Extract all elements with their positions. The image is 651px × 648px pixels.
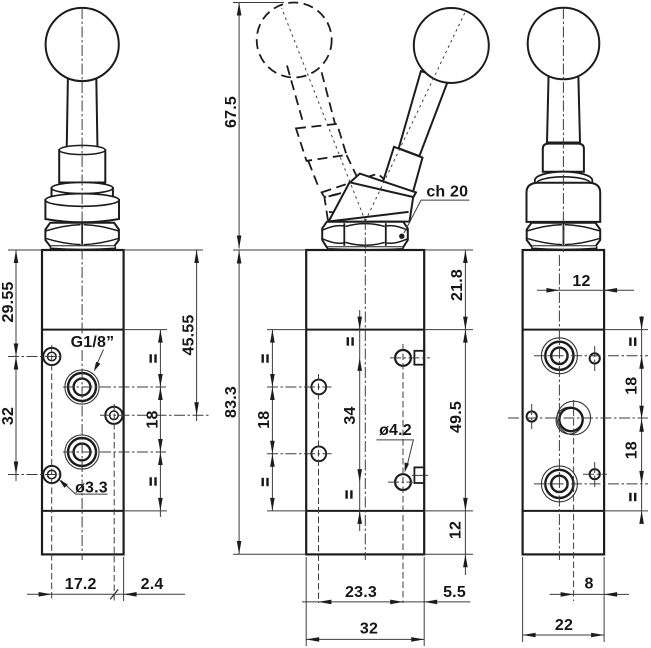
svg-text:67.5: 67.5	[223, 96, 240, 128]
svg-text:ø4.2: ø4.2	[379, 422, 412, 439]
svg-text:12: 12	[448, 521, 465, 539]
svg-text:34: 34	[342, 406, 359, 424]
svg-text:29.55: 29.55	[0, 281, 17, 322]
svg-text:22: 22	[555, 617, 573, 634]
svg-text:21.8: 21.8	[449, 269, 466, 301]
svg-text:83.3: 83.3	[223, 386, 240, 418]
svg-text:18: 18	[624, 441, 641, 459]
svg-text:18: 18	[256, 411, 273, 429]
svg-text:23.3: 23.3	[345, 584, 377, 601]
svg-text:G1/8”: G1/8”	[71, 334, 115, 351]
svg-text:17.2: 17.2	[65, 576, 97, 593]
svg-text:49.5: 49.5	[448, 401, 465, 433]
svg-text:18: 18	[624, 377, 641, 395]
svg-text:2.4: 2.4	[141, 576, 164, 593]
svg-text:5.5: 5.5	[443, 584, 466, 601]
svg-text:ø3.3: ø3.3	[75, 480, 108, 497]
svg-text:12: 12	[572, 273, 590, 290]
svg-text:32: 32	[0, 407, 17, 425]
svg-text:45.55: 45.55	[181, 314, 198, 355]
svg-text:32: 32	[360, 621, 378, 638]
svg-text:ch 20: ch 20	[426, 183, 468, 200]
svg-text:8: 8	[584, 576, 593, 593]
svg-text:18: 18	[144, 410, 161, 428]
